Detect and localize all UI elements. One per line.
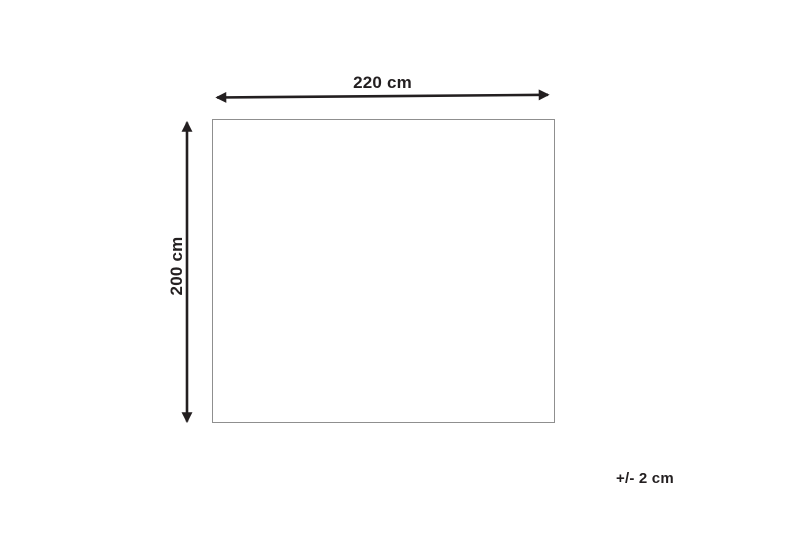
- height-dimension-label: 200 cm: [167, 226, 187, 306]
- width-dimension-label: 220 cm: [213, 74, 552, 91]
- width-dimension-arrow-icon: [217, 95, 548, 98]
- tolerance-note-label: +/- 2 cm: [616, 470, 674, 487]
- product-outline-rect: [212, 119, 555, 423]
- dimension-diagram: 220 cm 200 cm +/- 2 cm: [0, 0, 800, 533]
